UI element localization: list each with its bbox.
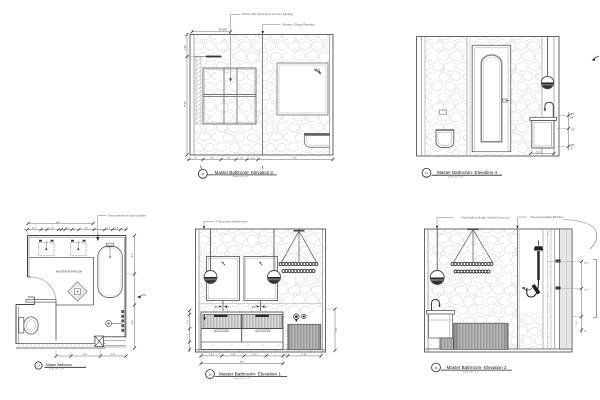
svg-text:3'-0": 3'-0" bbox=[584, 290, 589, 292]
svg-text:11: 11 bbox=[425, 171, 428, 175]
svg-text:2'-6": 2'-6" bbox=[293, 158, 298, 160]
svg-text:15: 15 bbox=[434, 366, 438, 370]
svg-text:11": 11" bbox=[584, 331, 587, 333]
svg-text:Scale: 1/4" = 1'-0": Scale: 1/4" = 1'-0" bbox=[448, 177, 464, 179]
svg-text:Scale: 1/4" = 1'-0": Scale: 1/4" = 1'-0" bbox=[233, 176, 249, 178]
svg-text:Master Bathroom- Elevation 4: Master Bathroom- Elevation 4 bbox=[437, 170, 497, 175]
svg-text:6'-0": 6'-0" bbox=[240, 362, 245, 364]
svg-text:4'-0": 4'-0" bbox=[32, 227, 36, 229]
svg-text:2'-8": 2'-8" bbox=[111, 354, 116, 356]
svg-text:8½: 8½ bbox=[215, 305, 218, 309]
svg-text:Master Bathroom- Elevation 1: Master Bathroom- Elevation 1 bbox=[219, 371, 281, 376]
svg-text:Marble slab on all walls, flus: Marble slab on all walls, flush with cou… bbox=[462, 216, 511, 219]
svg-text:5'-6½": 5'-6½" bbox=[219, 27, 227, 31]
svg-text:4'-2": 4'-2" bbox=[132, 253, 134, 258]
svg-text:3": 3" bbox=[571, 149, 573, 151]
svg-text:Master Bathroom: Master Bathroom bbox=[46, 363, 72, 367]
svg-text:Scale: 1/4" = 1'-0": Scale: 1/4" = 1'-0" bbox=[49, 368, 64, 370]
svg-text:3'-0": 3'-0" bbox=[584, 263, 589, 265]
svg-text:1'-6": 1'-6" bbox=[184, 45, 187, 50]
svg-text:2'-8": 2'-8" bbox=[83, 354, 88, 356]
svg-text:Niche with shelf and sconce li: Niche with shelf and sconce lighting bbox=[242, 13, 294, 16]
svg-text:8½: 8½ bbox=[252, 305, 255, 309]
svg-text:Towel warmers on wall for ladd: Towel warmers on wall for ladder bbox=[108, 215, 146, 218]
svg-text:2'-9": 2'-9" bbox=[336, 328, 338, 333]
svg-text:Recessed Glass Partition: Recessed Glass Partition bbox=[531, 216, 565, 219]
svg-text:Master Bathroom- Elevation 2: Master Bathroom- Elevation 2 bbox=[447, 365, 507, 370]
svg-text:Scale: 1/4" = 1'-0": Scale: 1/4" = 1'-0" bbox=[463, 371, 479, 373]
svg-text:Tiled accent behind mirror: Tiled accent behind mirror bbox=[216, 220, 248, 223]
svg-text:Scale: 1/4" = 1'-0": Scale: 1/4" = 1'-0" bbox=[234, 378, 250, 380]
svg-text:2'-10": 2'-10" bbox=[301, 354, 307, 356]
svg-text:3'-6": 3'-6" bbox=[132, 320, 134, 325]
svg-text:9¼": 9¼" bbox=[571, 116, 575, 119]
svg-text:Shower Glass Partition: Shower Glass Partition bbox=[282, 24, 316, 27]
svg-text:1'-1": 1'-1" bbox=[571, 130, 576, 132]
svg-text:7'-6": 7'-6" bbox=[183, 101, 187, 107]
svg-text:10: 10 bbox=[201, 172, 205, 176]
svg-text:16: 16 bbox=[208, 372, 212, 376]
svg-text:MASTER BATHROOM: MASTER BATHROOM bbox=[56, 271, 82, 274]
svg-text:Master Bathroom- Elevation 3: Master Bathroom- Elevation 3 bbox=[215, 170, 273, 175]
svg-text:2'-11: 2'-11 bbox=[231, 354, 236, 356]
